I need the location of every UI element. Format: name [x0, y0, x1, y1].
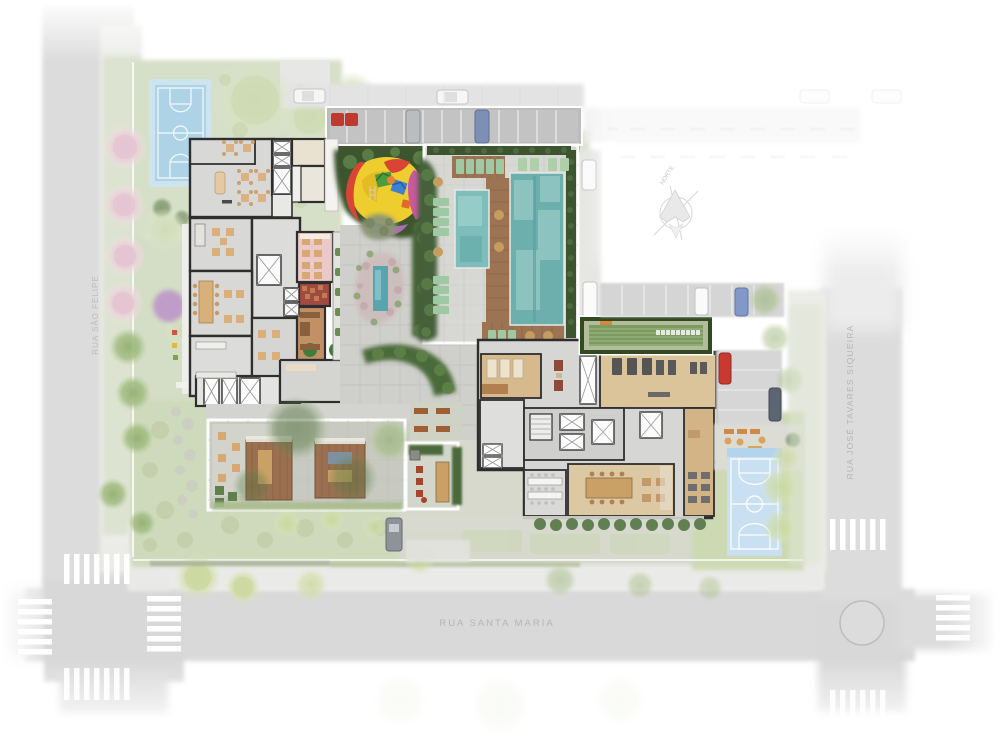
svg-text:RUA JOSÉ TAVARES SIQUEIRA: RUA JOSÉ TAVARES SIQUEIRA: [845, 324, 855, 479]
svg-text:RUA SÃO FELIPE: RUA SÃO FELIPE: [91, 275, 100, 354]
svg-text:RUA SANTA MARIA: RUA SANTA MARIA: [439, 618, 554, 629]
